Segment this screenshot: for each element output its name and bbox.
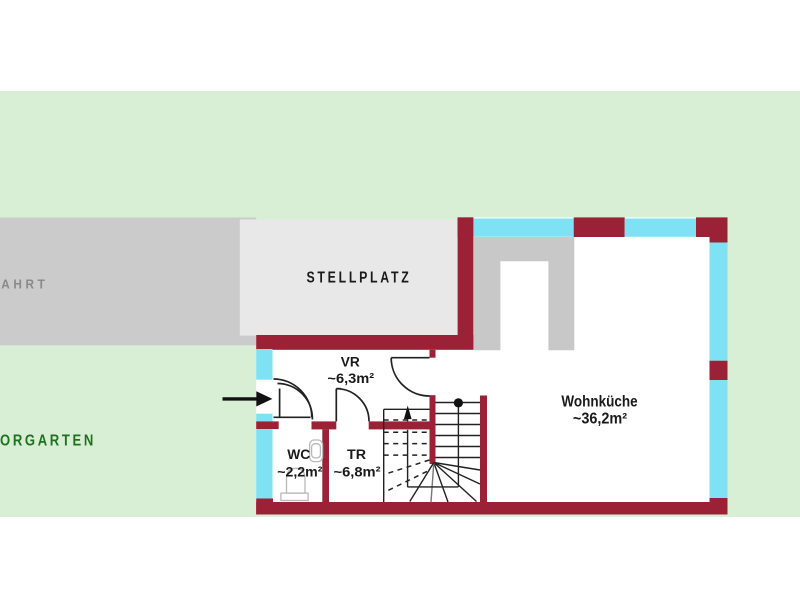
svg-text:~6,8m²: ~6,8m²	[334, 464, 381, 480]
svg-text:Wohnküche: Wohnküche	[561, 393, 637, 410]
svg-text:AHRT: AHRT	[1, 277, 48, 292]
svg-text:~36,2m²: ~36,2m²	[573, 411, 627, 428]
svg-text:VR: VR	[341, 355, 360, 371]
svg-text:WC: WC	[287, 447, 310, 463]
svg-text:~2,2m²: ~2,2m²	[277, 464, 323, 480]
svg-text:TR: TR	[347, 447, 366, 463]
svg-text:~6,3m²: ~6,3m²	[327, 371, 374, 387]
svg-text:ORGARTEN: ORGARTEN	[0, 432, 96, 449]
svg-text:STELLPLATZ: STELLPLATZ	[307, 269, 412, 286]
